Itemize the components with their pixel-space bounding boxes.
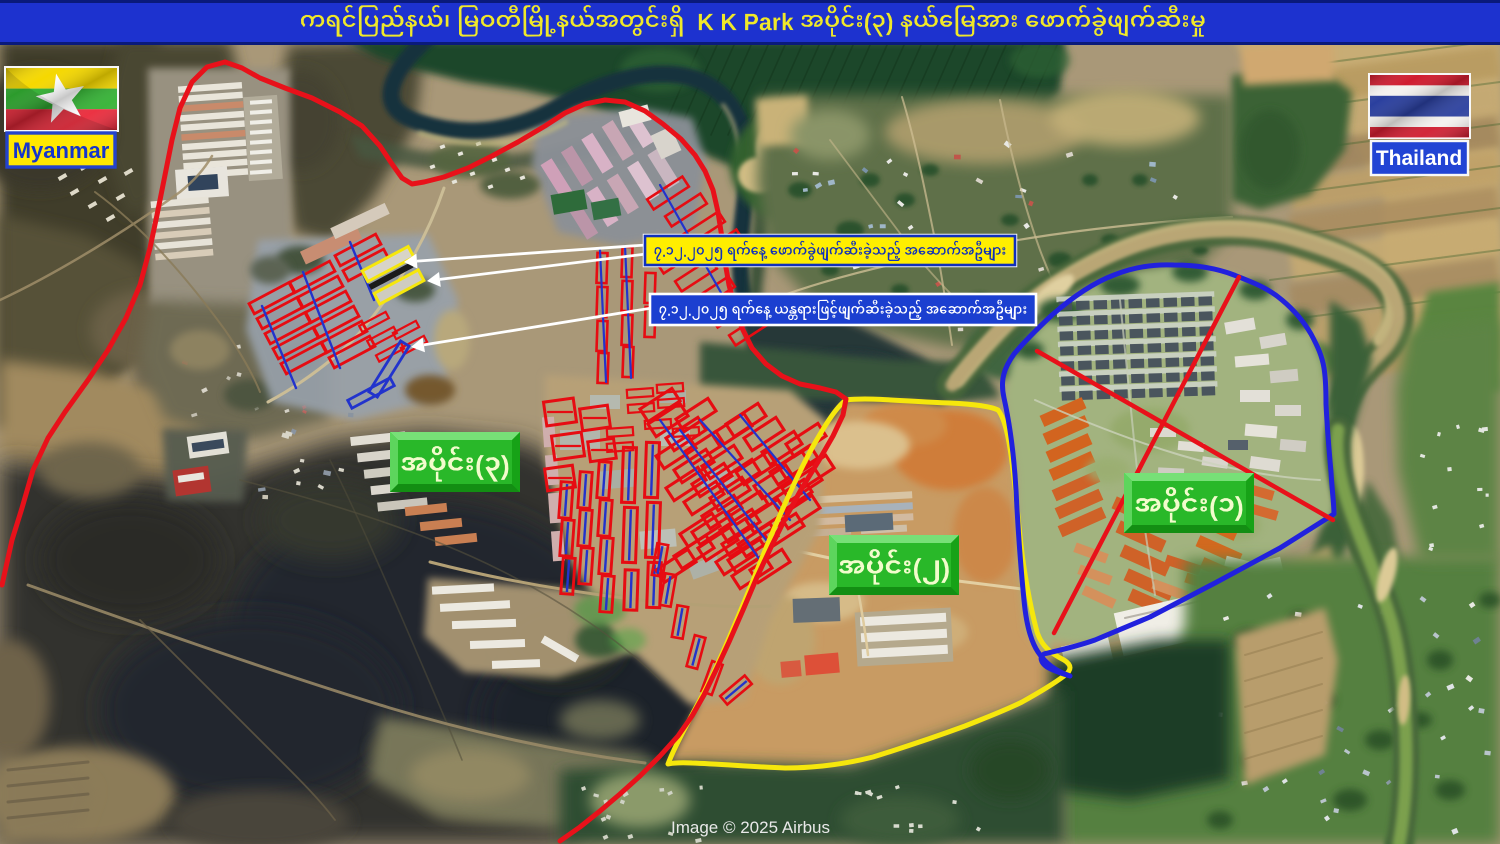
svg-text:Image © 2025 Airbus: Image © 2025 Airbus bbox=[671, 818, 830, 837]
svg-text:Thailand: Thailand bbox=[1376, 147, 1462, 170]
svg-text:Myanmar: Myanmar bbox=[13, 138, 110, 163]
